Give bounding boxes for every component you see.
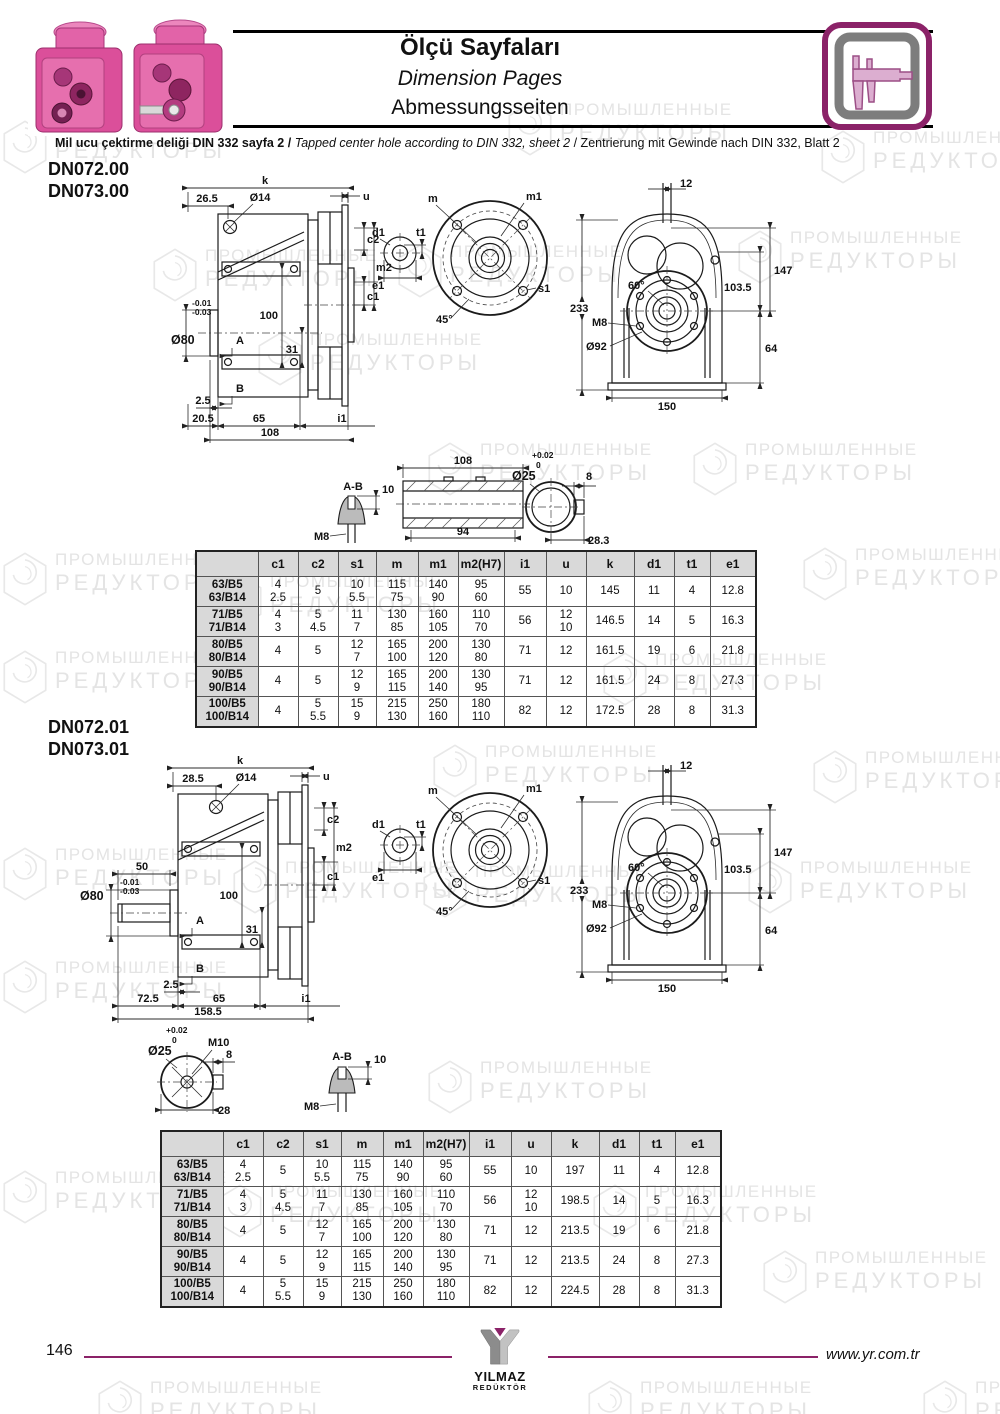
table-cell: 215 130: [376, 697, 418, 727]
dim-label: 45°: [436, 906, 453, 918]
dim-label: 108: [454, 455, 472, 467]
table-cell: 12 9: [303, 1247, 341, 1277]
table-cell: 28: [599, 1277, 639, 1307]
table-cell: 140 90: [418, 577, 458, 607]
watermark-logo-icon: [760, 1248, 810, 1306]
title-german: Abmessungsseiten: [290, 96, 670, 120]
column-header: d1: [634, 551, 674, 577]
table-cell: 180 110: [458, 697, 504, 727]
yilmaz-logo-icon: [474, 1328, 526, 1366]
table-cell: 31.3: [710, 697, 756, 727]
logo-name: YILMAZ: [452, 1370, 548, 1383]
table-cell: 56: [504, 607, 546, 637]
dim-label: 2.5: [163, 979, 178, 991]
dim-label: 20.5: [192, 413, 213, 425]
table-cell: 130 85: [341, 1187, 383, 1217]
dim-label: -0.03: [120, 886, 140, 896]
row-label: 100/B5 100/B14: [161, 1277, 223, 1307]
table-cell: 27.3: [675, 1247, 721, 1277]
dim-label: 64: [765, 925, 778, 937]
dim-label: 8: [586, 471, 592, 483]
watermark-text: ПРОМЫШЛЕННЫЕРЕДУКТОРЫ: [815, 1248, 988, 1294]
column-header: m: [376, 551, 418, 577]
dim-label: m2: [336, 842, 352, 854]
table-cell: 180 110: [423, 1277, 469, 1307]
watermark-text: ПРОМЫШЛЕННЫЕРЕДУКТОРЫ: [873, 128, 1000, 174]
column-header: d1: [599, 1131, 639, 1157]
table-cell: 12: [546, 637, 586, 667]
dim-label: k: [262, 175, 269, 187]
watermark: ПРОМЫШЛЕННЫЕРЕДУКТОРЫ: [0, 550, 228, 608]
note-english: Tapped center hole according to DIN 332,…: [295, 136, 570, 150]
table-cell: 71: [469, 1247, 511, 1277]
table-cell: 160 105: [383, 1187, 423, 1217]
drawing-front-view-1: 12 233 147 103.5 64 60° M8 Ø92 150: [568, 178, 803, 412]
table-cell: 82: [504, 697, 546, 727]
catalog-page: ПРОМЫШЛЕННЫЕРЕДУКТОРЫПРОМЫШЛЕННЫЕРЕДУКТО…: [0, 0, 1000, 1414]
watermark-text: ПРОМЫШЛЕННЫЕРЕДУКТОРЫ: [855, 545, 1000, 591]
dim-label: Ø14: [250, 192, 272, 204]
dim-label: 2.5: [195, 395, 210, 407]
table-cell: 130 95: [458, 667, 504, 697]
watermark: ПРОМЫШЛЕННЫЕРЕДУКТОРЫ: [818, 128, 1000, 186]
table-row: 71/B5 71/B144 35 4.511 7130 85160 105110…: [161, 1187, 721, 1217]
model-label: DN073.00: [48, 180, 129, 202]
table-cell: 200 140: [383, 1247, 423, 1277]
watermark: ПРОМЫШЛЕННЫЕРЕДУКТОРЫ: [810, 748, 1000, 806]
column-header: m: [341, 1131, 383, 1157]
table-cell: 172.5: [586, 697, 634, 727]
table-cell: 6: [674, 637, 710, 667]
dim-label: 8: [226, 1049, 232, 1061]
drawing-flange-view-1: d1 t1 e1 m m1 s1 45°: [368, 190, 566, 332]
dim-label: M8: [592, 317, 607, 329]
corner-cell: [196, 551, 258, 577]
dim-label: m1: [526, 191, 542, 203]
table-cell: 8: [674, 697, 710, 727]
dimension-table-2: c1c2s1mm1m2(H7)i1ukd1t1e163/B5 63/B144 2…: [160, 1130, 722, 1308]
dim-label: m1: [526, 783, 542, 795]
table-cell: 5: [263, 1157, 303, 1187]
dim-label: 10: [374, 1054, 386, 1066]
watermark-text: ПРОМЫШЛЕННЫЕРЕДУКТОРЫ: [865, 748, 1000, 794]
table-cell: 10: [546, 577, 586, 607]
watermark-logo-icon: [0, 845, 50, 903]
watermark: ПРОМЫШЛЕННЫЕРЕДУКТОРЫ: [0, 648, 228, 706]
dim-label: 103.5: [724, 864, 752, 876]
drawing-front-view-2: 12 233 147 103.5 64 60° M8 Ø92 150: [568, 760, 803, 994]
dim-label: 28.5: [182, 773, 203, 785]
table-row: 80/B5 80/B144512 7165 100200 120130 8071…: [161, 1217, 721, 1247]
dim-label: Ø80: [171, 333, 195, 347]
watermark-logo-icon: [810, 748, 860, 806]
dim-label: Ø92: [586, 923, 607, 935]
table-cell: 213.5: [551, 1247, 599, 1277]
table-cell: 4: [258, 637, 298, 667]
dimension-table-1: c1c2s1mm1m2(H7)i1ukd1t1e163/B5 63/B144 2…: [195, 550, 757, 728]
column-header: k: [551, 1131, 599, 1157]
column-header: m1: [418, 551, 458, 577]
column-header: k: [586, 551, 634, 577]
table-cell: 15 9: [303, 1277, 341, 1307]
dim-label: 60°: [628, 280, 645, 292]
dim-label: c1: [327, 871, 339, 883]
table-cell: 250 160: [383, 1277, 423, 1307]
dim-label: u: [323, 771, 330, 783]
table-cell: 11: [599, 1157, 639, 1187]
table-cell: 213.5: [551, 1217, 599, 1247]
dim-label: 31: [286, 344, 298, 356]
dim-label: 103.5: [724, 282, 752, 294]
dim-label: 0: [172, 1035, 177, 1045]
table-cell: 5 5.5: [298, 697, 338, 727]
table-cell: 4: [258, 697, 298, 727]
table-cell: 12: [546, 697, 586, 727]
table-cell: 19: [599, 1217, 639, 1247]
table-cell: 12.8: [675, 1157, 721, 1187]
table-cell: 21.8: [710, 637, 756, 667]
footer-rule: [84, 1356, 818, 1358]
dim-label: i1: [337, 413, 346, 425]
table-cell: 12.8: [710, 577, 756, 607]
watermark-logo-icon: [0, 550, 50, 608]
table-cell: 197: [551, 1157, 599, 1187]
table-cell: 12: [511, 1277, 551, 1307]
table-cell: 130 95: [423, 1247, 469, 1277]
title-english: Dimension Pages: [290, 67, 670, 91]
dim-label: B: [236, 383, 244, 395]
table-cell: 12 7: [303, 1217, 341, 1247]
table-cell: 5: [263, 1247, 303, 1277]
watermark: ПРОМЫШЛЕННЫЕРЕДУКТОРЫ: [690, 440, 918, 498]
table-cell: 4: [639, 1157, 675, 1187]
dim-label: t1: [416, 819, 426, 831]
table-cell: 5: [298, 637, 338, 667]
dim-label: 233: [570, 303, 588, 315]
dim-label: M8: [304, 1101, 319, 1113]
table-cell: 200 140: [418, 667, 458, 697]
table-cell: 24: [599, 1247, 639, 1277]
dim-label: M8: [314, 531, 329, 543]
table-cell: 14: [634, 607, 674, 637]
dim-label: s1: [538, 875, 550, 887]
table-cell: 161.5: [586, 667, 634, 697]
page-title: Ölçü Sayfaları Dimension Pages Abmessung…: [290, 34, 670, 120]
dim-label: s1: [538, 283, 550, 295]
column-header: e1: [710, 551, 756, 577]
dim-label: 0: [536, 460, 541, 470]
watermark-logo-icon: [0, 1168, 50, 1226]
table-cell: 11: [634, 577, 674, 607]
table-cell: 16.3: [710, 607, 756, 637]
column-header: e1: [675, 1131, 721, 1157]
watermark: ПРОМЫШЛЕННЫЕРЕДУКТОРЫ: [585, 1378, 813, 1414]
watermark-text: ПРОМЫШЛЕННЫЕРЕДУКТОРЫ: [790, 228, 963, 274]
dim-label: 147: [774, 847, 792, 859]
table-cell: 130 85: [376, 607, 418, 637]
dim-label: m: [428, 193, 438, 205]
watermark-logo-icon: [690, 440, 740, 498]
column-header: c1: [258, 551, 298, 577]
note-german: / Zentrierung mit Gewinde nach DIN 332, …: [574, 136, 840, 150]
watermark-logo-icon: [920, 1378, 970, 1414]
table-cell: 10: [511, 1157, 551, 1187]
table-cell: 5: [639, 1187, 675, 1217]
table-cell: 5: [298, 577, 338, 607]
table-row: 90/B5 90/B144512 9165 115200 140130 9571…: [196, 667, 756, 697]
row-label: 90/B5 90/B14: [196, 667, 258, 697]
dim-label: k: [237, 755, 244, 767]
dim-label: e1: [372, 872, 384, 884]
watermark: ПРОМЫШЛЕННЫЕРЕДУКТОРЫ: [800, 545, 1000, 603]
dim-label: +0.02: [166, 1025, 188, 1035]
dim-label: Ø25: [512, 469, 536, 483]
dim-label: i1: [301, 993, 310, 1005]
dim-label: A: [196, 915, 204, 927]
table-cell: 165 115: [376, 667, 418, 697]
table-cell: 5: [263, 1217, 303, 1247]
dim-label: 12: [680, 178, 692, 190]
dim-label: d1: [372, 227, 385, 239]
dim-label: +0.02: [532, 450, 554, 460]
watermark-logo-icon: [800, 545, 850, 603]
table-cell: 115 75: [376, 577, 418, 607]
table-cell: 140 90: [383, 1157, 423, 1187]
table-row: 63/B5 63/B144 2.5510 5.5115 75140 9095 6…: [161, 1157, 721, 1187]
table-cell: 15 9: [338, 697, 376, 727]
dim-label: 233: [570, 885, 588, 897]
row-label: 90/B5 90/B14: [161, 1247, 223, 1277]
table-row: 71/B5 71/B144 35 4.511 7130 85160 105110…: [196, 607, 756, 637]
column-header: s1: [303, 1131, 341, 1157]
table-cell: 31.3: [675, 1277, 721, 1307]
table-cell: 5 4.5: [298, 607, 338, 637]
dim-label: t1: [416, 227, 426, 239]
table-cell: 4: [223, 1217, 263, 1247]
dim-label: 50: [136, 861, 148, 873]
dim-label: 31: [246, 924, 258, 936]
table-cell: 55: [504, 577, 546, 607]
table-row: 63/B5 63/B144 2.5510 5.5115 75140 9095 6…: [196, 577, 756, 607]
dim-label: 65: [213, 993, 225, 1005]
table-cell: 14: [599, 1187, 639, 1217]
column-header: u: [546, 551, 586, 577]
table-cell: 12: [511, 1247, 551, 1277]
title-turkish: Ölçü Sayfaları: [290, 34, 670, 62]
table-cell: 24: [634, 667, 674, 697]
table-cell: 71: [504, 637, 546, 667]
dim-label: 60°: [628, 862, 645, 874]
table-cell: 165 115: [341, 1247, 383, 1277]
table-row: 100/B5 100/B1445 5.515 9215 130250 16018…: [161, 1277, 721, 1307]
table-cell: 4 3: [223, 1187, 263, 1217]
watermark: ПРОМЫШЛЕННЫЕРЕДУКТОРЫ: [920, 1378, 1000, 1414]
watermark-logo-icon: [425, 1058, 475, 1116]
table-cell: 12: [511, 1217, 551, 1247]
dim-label: d1: [372, 819, 385, 831]
dim-label: A-B: [343, 481, 363, 493]
dim-label: m: [428, 785, 438, 797]
gearbox-photo: [28, 10, 233, 136]
watermark-text: ПРОМЫШЛЕННЫЕРЕДУКТОРЫ: [150, 1378, 323, 1414]
watermark: ПРОМЫШЛЕННЫЕРЕДУКТОРЫ: [425, 1058, 653, 1116]
table-cell: 12 10: [546, 607, 586, 637]
table-cell: 4 3: [258, 607, 298, 637]
column-header: m1: [383, 1131, 423, 1157]
table-cell: 110 70: [423, 1187, 469, 1217]
drawing-side-view-2: k 28.5 Ø14 50 u c2 m2 c1 100: [78, 752, 378, 1027]
table-cell: 8: [639, 1247, 675, 1277]
watermark-text: ПРОМЫШЛЕННЫЕРЕДУКТОРЫ: [800, 858, 973, 904]
table-cell: 10 5.5: [303, 1157, 341, 1187]
table-cell: 11 7: [338, 607, 376, 637]
table-cell: 5 4.5: [263, 1187, 303, 1217]
row-label: 63/B5 63/B14: [161, 1157, 223, 1187]
row-label: 80/B5 80/B14: [161, 1217, 223, 1247]
column-header: c2: [263, 1131, 303, 1157]
column-header: t1: [639, 1131, 675, 1157]
table-cell: 82: [469, 1277, 511, 1307]
table-cell: 145: [586, 577, 634, 607]
model-label: DN072.00: [48, 158, 129, 180]
table-cell: 12 7: [338, 637, 376, 667]
logo-subtitle: REDÜKTÖR: [452, 1384, 548, 1392]
dim-label: 147: [774, 265, 792, 277]
table-cell: 146.5: [586, 607, 634, 637]
dim-label: 72.5: [137, 993, 158, 1005]
dim-label: 28.3: [588, 535, 609, 547]
column-header: i1: [504, 551, 546, 577]
dim-label: 64: [765, 343, 778, 355]
row-label: 63/B5 63/B14: [196, 577, 258, 607]
table-cell: 130 80: [458, 637, 504, 667]
table-cell: 11 7: [303, 1187, 341, 1217]
dim-label: Ø80: [80, 889, 104, 903]
column-header: i1: [469, 1131, 511, 1157]
dim-label: 100: [260, 310, 278, 322]
dim-label: A-B: [332, 1051, 352, 1063]
table-cell: 71: [469, 1217, 511, 1247]
watermark-logo-icon: [95, 1378, 145, 1414]
watermark: ПРОМЫШЛЕННЫЕРЕДУКТОРЫ: [95, 1378, 323, 1414]
column-header: c1: [223, 1131, 263, 1157]
table-cell: 224.5: [551, 1277, 599, 1307]
corner-cell: [161, 1131, 223, 1157]
dim-label: 10: [382, 484, 394, 496]
table-cell: 6: [639, 1217, 675, 1247]
table-cell: 200 120: [418, 637, 458, 667]
drawing-flange-view-2: d1 t1 e1 m m1 s1 45°: [368, 782, 566, 924]
dim-label: -0.03: [192, 307, 212, 317]
watermark: ПРОМЫШЛЕННЫЕРЕДУКТОРЫ: [760, 1248, 988, 1306]
watermark-logo-icon: [0, 648, 50, 706]
table-cell: 5: [298, 667, 338, 697]
dim-label: 94: [457, 526, 470, 538]
table-row: 90/B5 90/B144512 9165 115200 140130 9571…: [161, 1247, 721, 1277]
dim-label: 65: [253, 413, 265, 425]
dim-label: Ø92: [586, 341, 607, 353]
column-header: s1: [338, 551, 376, 577]
row-label: 80/B5 80/B14: [196, 637, 258, 667]
table-cell: 55: [469, 1157, 511, 1187]
model-numbers-1: DN072.00 DN073.00: [48, 158, 129, 202]
table-cell: 161.5: [586, 637, 634, 667]
table-cell: 200 120: [383, 1217, 423, 1247]
dim-label: 26.5: [196, 193, 217, 205]
watermark-logo-icon: [585, 1378, 635, 1414]
watermark-text: ПРОМЫШЛЕННЫЕРЕДУКТОРЫ: [640, 1378, 813, 1414]
table-cell: 4: [223, 1277, 263, 1307]
column-header: t1: [674, 551, 710, 577]
table-cell: 27.3: [710, 667, 756, 697]
table-cell: 215 130: [341, 1277, 383, 1307]
table-cell: 12 10: [511, 1187, 551, 1217]
watermark-logo-icon: [0, 958, 50, 1016]
caliper-icon: [822, 22, 932, 130]
dim-label: 12: [680, 760, 692, 772]
note-turkish: Mil ucu çektirme deliği DIN 332 sayfa 2 …: [55, 136, 291, 150]
table-cell: 165 100: [376, 637, 418, 667]
table-cell: 5 5.5: [263, 1277, 303, 1307]
table-cell: 5: [674, 607, 710, 637]
yilmaz-logo: YILMAZ REDÜKTÖR: [452, 1328, 548, 1392]
table-cell: 56: [469, 1187, 511, 1217]
dim-label: B: [196, 963, 204, 975]
dim-label: M8: [592, 899, 607, 911]
table-cell: 4: [223, 1247, 263, 1277]
table-cell: 16.3: [675, 1187, 721, 1217]
page-number: 146: [46, 1342, 73, 1360]
table-cell: 4 2.5: [258, 577, 298, 607]
watermark-text: ПРОМЫШЛЕННЫЕРЕДУКТОРЫ: [480, 1058, 653, 1104]
table-cell: 8: [674, 667, 710, 697]
column-header: m2(H7): [458, 551, 504, 577]
dim-label: 158.5: [194, 1006, 222, 1018]
drawing-shaft-detail-2: +0.02 0 Ø25 M10 8 28 A-B 10 M8: [122, 1020, 422, 1122]
table-cell: 4: [258, 667, 298, 697]
row-label: 100/B5 100/B14: [196, 697, 258, 727]
website-url: www.yr.com.tr: [826, 1346, 920, 1363]
column-header: u: [511, 1131, 551, 1157]
table-cell: 19: [634, 637, 674, 667]
table-cell: 4 2.5: [223, 1157, 263, 1187]
table-cell: 95 60: [458, 577, 504, 607]
table-cell: 71: [504, 667, 546, 697]
dim-label: Ø14: [236, 772, 258, 784]
column-header: m2(H7): [423, 1131, 469, 1157]
table-cell: 4: [674, 577, 710, 607]
row-label: 71/B5 71/B14: [161, 1187, 223, 1217]
dim-label: A: [236, 335, 244, 347]
table-cell: 95 60: [423, 1157, 469, 1187]
dim-label: c2: [327, 814, 339, 826]
drawing-shaft-detail-1: A-B 10 M8 108 94 +0.02 0 Ø25 8 28.3: [278, 446, 623, 552]
table-cell: 21.8: [675, 1217, 721, 1247]
dim-label: e1: [372, 280, 384, 292]
drawing-side-view-1: k 26.5 Ø14 u c2 m2 c1 100 -0.01 -0.03: [170, 172, 392, 444]
row-label: 71/B5 71/B14: [196, 607, 258, 637]
dim-label: 150: [658, 983, 676, 995]
table-cell: 115 75: [341, 1157, 383, 1187]
table-cell: 28: [634, 697, 674, 727]
table-cell: 110 70: [458, 607, 504, 637]
din-note: Mil ucu çektirme deliği DIN 332 sayfa 2 …: [55, 136, 840, 150]
dim-label: 45°: [436, 314, 453, 326]
table-cell: 198.5: [551, 1187, 599, 1217]
table-cell: 12 9: [338, 667, 376, 697]
table-cell: 160 105: [418, 607, 458, 637]
table-cell: 10 5.5: [338, 577, 376, 607]
